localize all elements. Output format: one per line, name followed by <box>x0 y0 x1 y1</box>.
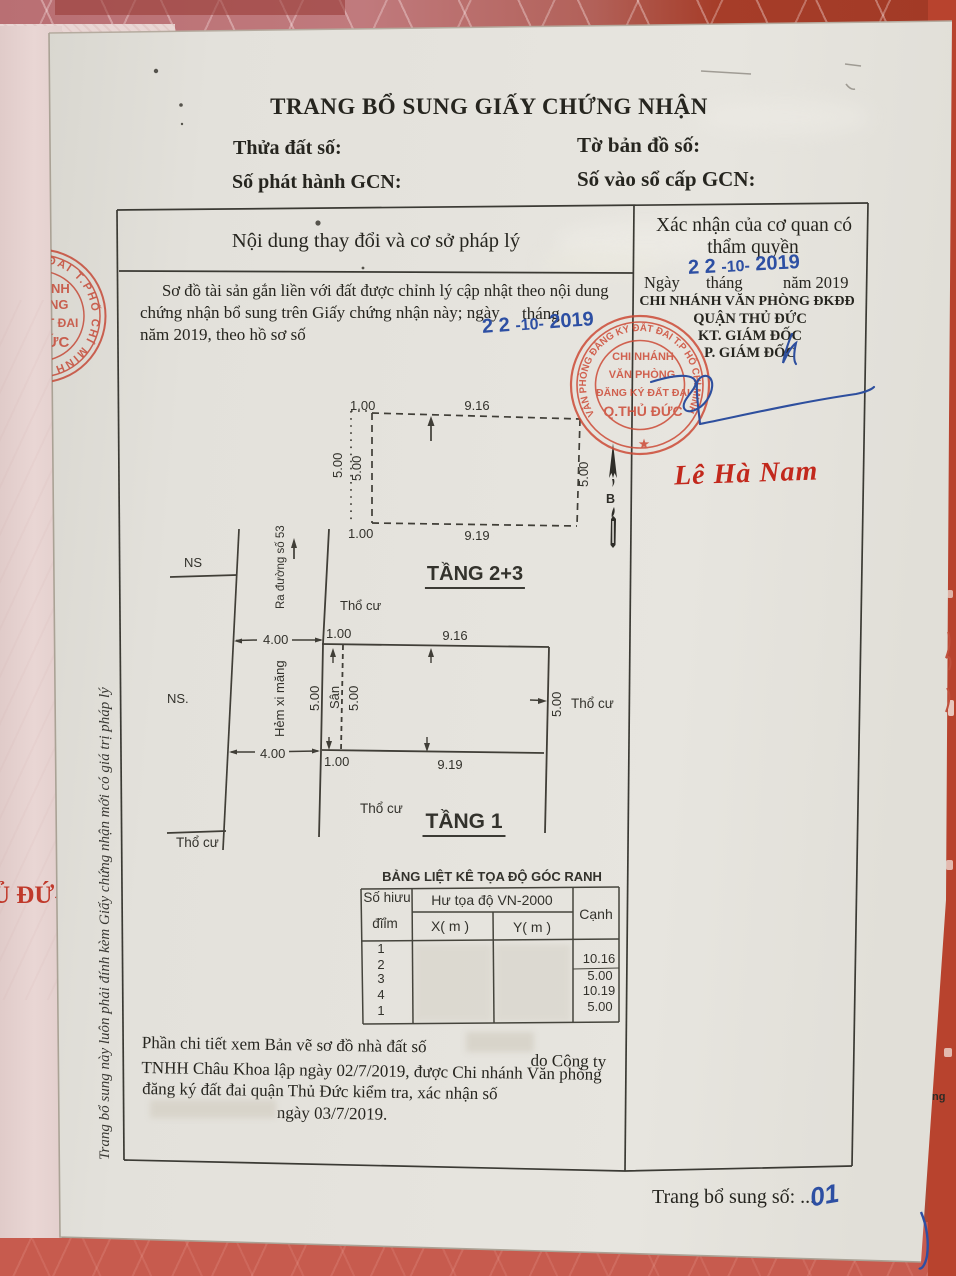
svg-text:ĐĂNG KÝ ĐẤT ĐAI: ĐĂNG KÝ ĐẤT ĐAI <box>596 386 690 399</box>
svg-text:★: ★ <box>639 437 650 451</box>
svg-text:Q.THỦ ĐỨC: Q.THỦ ĐỨC <box>603 402 682 419</box>
svg-text:B: B <box>606 492 615 506</box>
svg-text:ng: ng <box>932 1091 945 1103</box>
svg-text:CHI NHÁNH: CHI NHÁNH <box>612 350 674 363</box>
